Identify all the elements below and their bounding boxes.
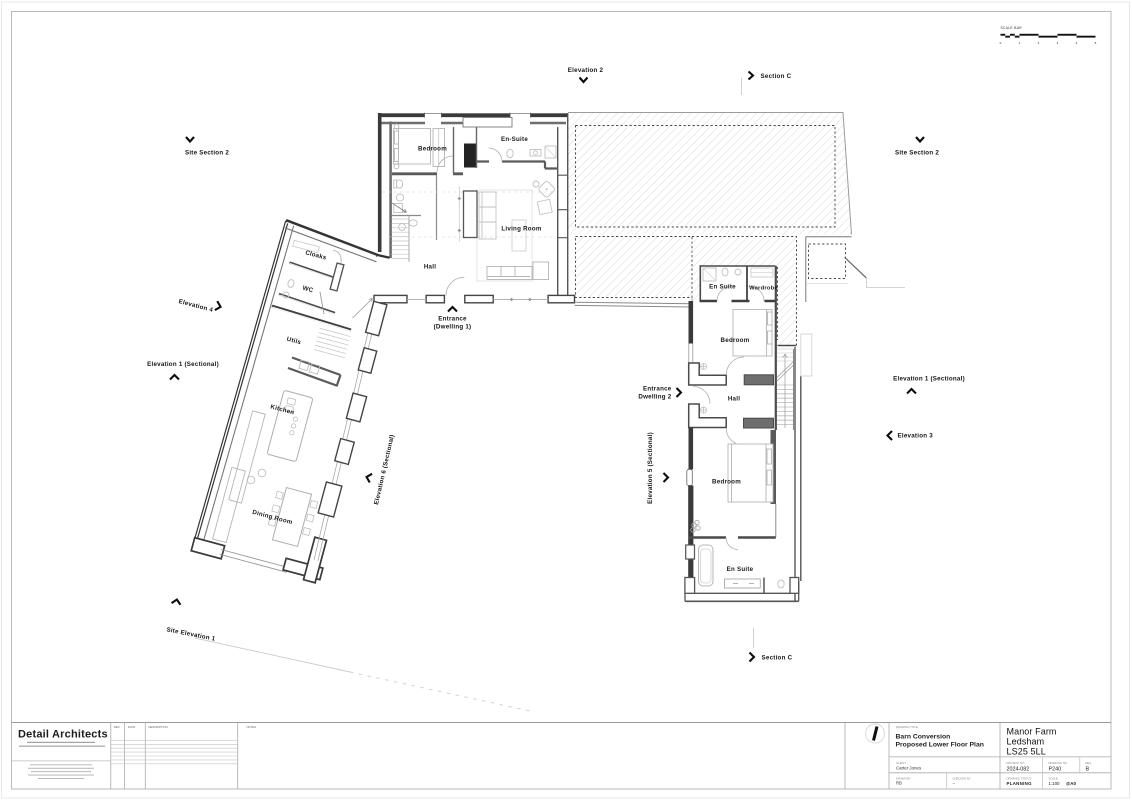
- svg-text:PROJECT NO: PROJECT NO: [1007, 761, 1026, 765]
- svg-text:En-Suite: En-Suite: [501, 136, 528, 143]
- svg-text:Barn Conversion: Barn Conversion: [896, 734, 951, 741]
- svg-text:Elevation 3: Elevation 3: [898, 433, 934, 440]
- svg-text:Bedroom: Bedroom: [712, 479, 741, 486]
- svg-text:PLANNING: PLANNING: [1007, 781, 1033, 786]
- svg-text:RB: RB: [896, 781, 902, 786]
- svg-text:NOTES: NOTES: [247, 725, 257, 729]
- svg-text:Site Section 2: Site Section 2: [185, 150, 229, 157]
- svg-text:Carter Jones: Carter Jones: [896, 766, 922, 771]
- svg-text:1:100: 1:100: [1049, 781, 1061, 786]
- svg-text:P240: P240: [1049, 767, 1062, 773]
- svg-text:Ledsham: Ledsham: [1007, 737, 1045, 747]
- svg-text:Living Room: Living Room: [501, 226, 541, 233]
- svg-text:Section C: Section C: [762, 655, 793, 662]
- svg-text:Detail Architects: Detail Architects: [18, 729, 108, 741]
- svg-text:B: B: [1086, 767, 1090, 773]
- svg-text:SCALE BAR: SCALE BAR: [1001, 26, 1023, 30]
- svg-text:Section C: Section C: [761, 73, 792, 80]
- svg-text:En Suite: En Suite: [727, 566, 754, 573]
- svg-text:CLIENT: CLIENT: [896, 761, 906, 765]
- svg-text:Proposed Lower Floor Plan: Proposed Lower Floor Plan: [896, 742, 984, 749]
- svg-text:SCALE: SCALE: [1049, 777, 1058, 781]
- svg-text:Wardrobe: Wardrobe: [749, 286, 778, 292]
- svg-text:Hall: Hall: [424, 264, 436, 271]
- svg-text:Elevation 1 (Sectional): Elevation 1 (Sectional): [147, 361, 219, 368]
- svg-text:DRAWING NO: DRAWING NO: [1049, 761, 1068, 765]
- svg-text:REV: REV: [114, 725, 120, 729]
- svg-text:@A0: @A0: [1066, 781, 1076, 786]
- svg-text:2024-082: 2024-082: [1007, 767, 1030, 773]
- svg-text:(Dwelling 1): (Dwelling 1): [434, 324, 472, 331]
- svg-text:DESCRIPTION: DESCRIPTION: [149, 725, 168, 729]
- svg-text:REV: REV: [1086, 761, 1092, 765]
- svg-text:Entrance: Entrance: [643, 386, 672, 393]
- svg-text:DRAWING TITLE: DRAWING TITLE: [896, 725, 918, 729]
- svg-text:Manor Farm: Manor Farm: [1007, 727, 1057, 737]
- svg-text:Entrance: Entrance: [438, 316, 467, 323]
- svg-text:Bedroom: Bedroom: [418, 146, 447, 153]
- svg-text:En Suite: En Suite: [709, 284, 736, 291]
- svg-text:Elevation 2: Elevation 2: [568, 67, 604, 74]
- svg-text:LS25 5LL: LS25 5LL: [1007, 747, 1046, 757]
- svg-text:Hall: Hall: [728, 396, 740, 403]
- svg-text:DATE: DATE: [128, 725, 135, 729]
- svg-text:DRAWING STATUS: DRAWING STATUS: [1007, 777, 1032, 781]
- svg-text:Elevation 1 (Sectional): Elevation 1 (Sectional): [893, 376, 965, 383]
- svg-text:Bedroom: Bedroom: [721, 337, 750, 344]
- svg-text:Site Section 2: Site Section 2: [895, 150, 939, 157]
- svg-text:Dwelling 2: Dwelling 2: [638, 394, 671, 401]
- svg-text:Elevation 5 (Sectional): Elevation 5 (Sectional): [647, 432, 654, 504]
